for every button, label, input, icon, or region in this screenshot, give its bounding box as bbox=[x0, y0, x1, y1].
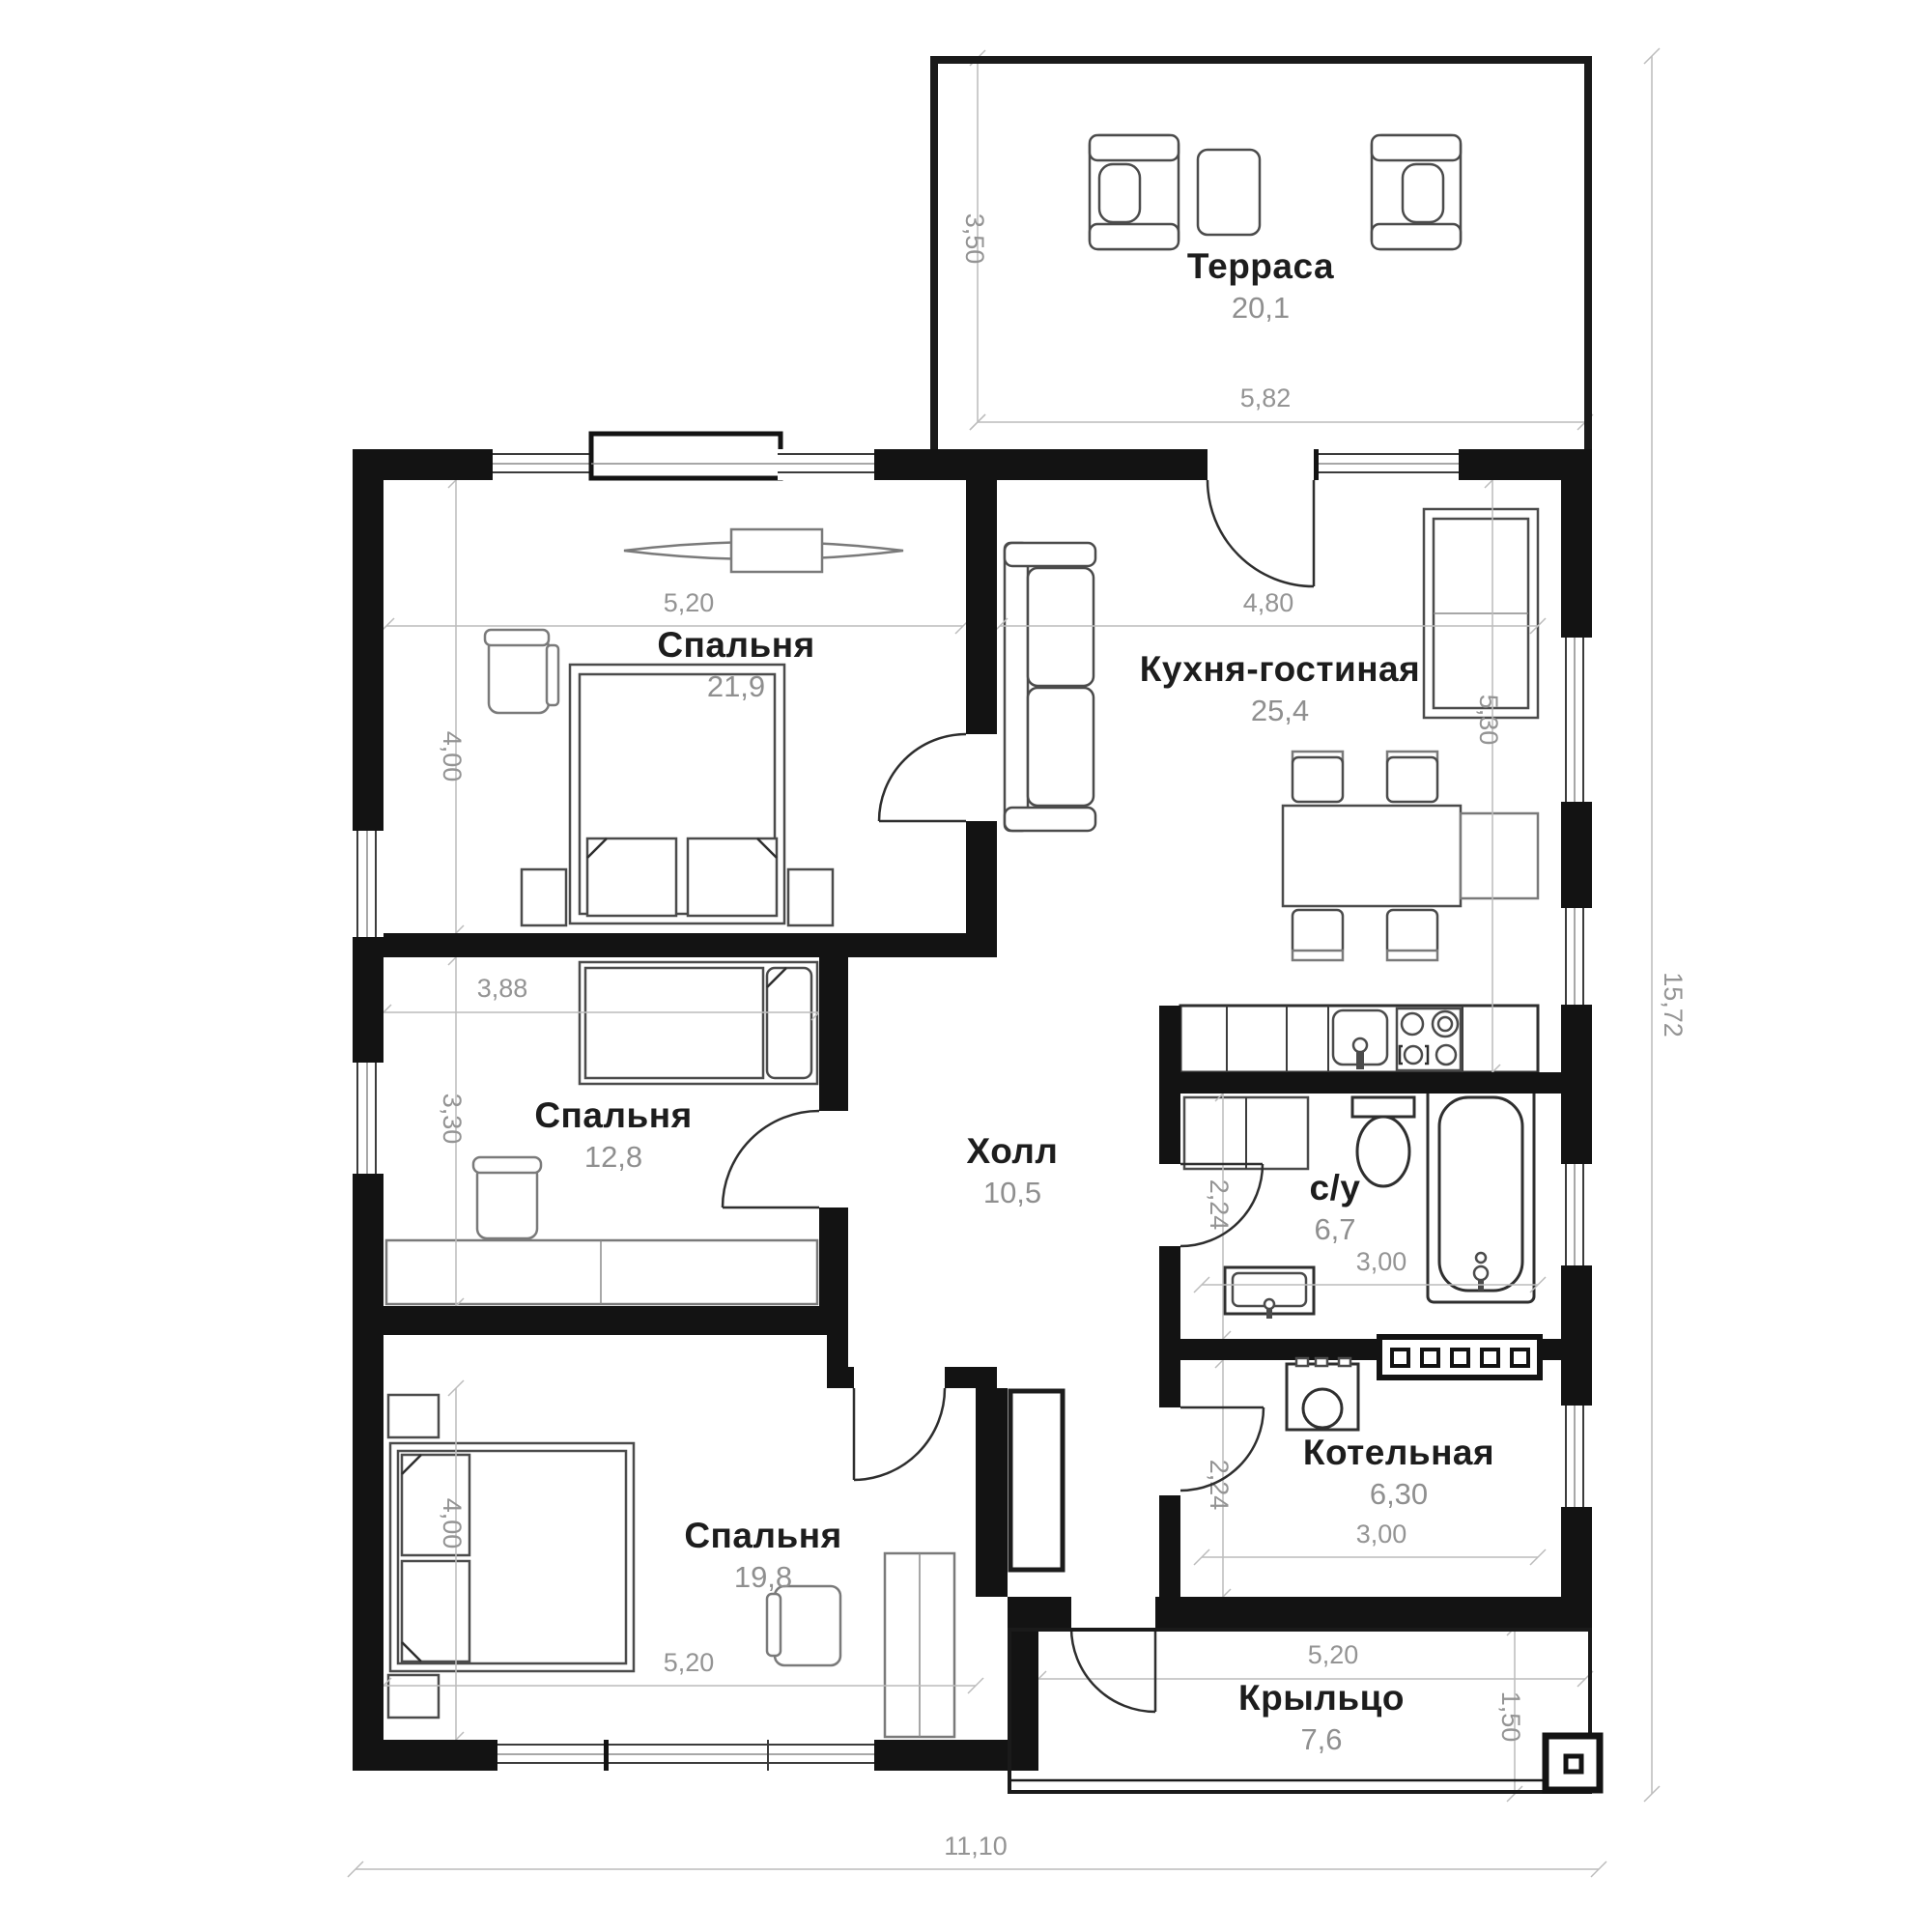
room-name: Терраса bbox=[1187, 246, 1334, 286]
room-label: Спальня12,8 bbox=[534, 1095, 692, 1174]
window bbox=[497, 1740, 604, 1771]
wall-exterior-bottom-right bbox=[1008, 1597, 1071, 1628]
vanity-cabinet bbox=[1184, 1097, 1308, 1169]
floor-plan-drawing: 3,505,825,204,805,304,003,883,302,243,00… bbox=[0, 0, 1932, 1932]
chair bbox=[1387, 757, 1437, 802]
dimension-value: 4,80 bbox=[1243, 588, 1294, 617]
dimension: 3,50 bbox=[960, 50, 989, 430]
wall-bedroom2-hall bbox=[819, 957, 848, 1111]
stove-icon bbox=[1397, 1009, 1461, 1070]
dimension: 5,82 bbox=[970, 384, 1593, 430]
dimension-value: 3,30 bbox=[438, 1094, 467, 1145]
kitchen-sink-icon bbox=[1333, 1010, 1387, 1069]
window bbox=[1561, 1406, 1592, 1507]
coffee-table bbox=[1198, 150, 1260, 235]
wardrobe bbox=[885, 1553, 954, 1737]
window bbox=[778, 449, 874, 480]
wall-bedroom2-bedroom3 bbox=[353, 1306, 848, 1335]
window bbox=[353, 831, 384, 937]
pillow bbox=[402, 1561, 469, 1662]
dimension-value: 3,00 bbox=[1356, 1520, 1407, 1548]
double-bed bbox=[570, 665, 784, 923]
door-bedroom2 bbox=[723, 1111, 819, 1207]
armrest bbox=[1372, 135, 1461, 160]
dimension-value: 5,30 bbox=[1474, 695, 1503, 746]
armrest bbox=[1372, 224, 1461, 249]
room-name: Спальня bbox=[534, 1095, 692, 1135]
door-bedroom1 bbox=[879, 734, 966, 821]
door-terrace bbox=[1207, 480, 1314, 586]
terrace-wall-left bbox=[930, 56, 938, 449]
nightstand bbox=[788, 869, 833, 925]
room-area: 21,9 bbox=[707, 669, 765, 703]
room-area: 7,6 bbox=[1300, 1722, 1342, 1756]
chair-back bbox=[1293, 951, 1343, 960]
cushion bbox=[1028, 688, 1094, 806]
room-name: с/у bbox=[1310, 1168, 1361, 1207]
wall-kitchen-bathroom bbox=[1159, 1072, 1561, 1094]
dimension-value: 11,10 bbox=[944, 1832, 1008, 1861]
armchair bbox=[1090, 135, 1179, 249]
double-bed bbox=[390, 1443, 634, 1671]
pillow bbox=[767, 968, 811, 1078]
room-label: Холл10,5 bbox=[967, 1131, 1059, 1209]
dimension-value: 5,20 bbox=[664, 588, 715, 617]
bathroom-sink-icon bbox=[1225, 1267, 1314, 1319]
room-label: Терраса20,1 bbox=[1187, 246, 1334, 325]
pillow bbox=[587, 838, 676, 916]
tall-cabinet bbox=[1424, 509, 1538, 718]
nightstand bbox=[522, 869, 566, 925]
terrace-wall-right bbox=[1584, 56, 1592, 449]
room-area: 25,4 bbox=[1251, 694, 1309, 727]
room-area: 12,8 bbox=[584, 1140, 642, 1174]
boiler-unit-icon bbox=[1287, 1358, 1358, 1430]
armchair bbox=[767, 1586, 840, 1665]
chair bbox=[1293, 910, 1343, 954]
dimension-value: 15,72 bbox=[1659, 972, 1688, 1037]
room-area: 20,1 bbox=[1232, 291, 1290, 325]
window bbox=[353, 1063, 384, 1174]
dimension: 1,50 bbox=[1496, 1620, 1525, 1802]
dimension: 4,00 bbox=[438, 472, 467, 941]
dimension-value: 4,00 bbox=[438, 1498, 467, 1549]
single-bed bbox=[580, 962, 817, 1084]
room-name: Холл bbox=[967, 1131, 1059, 1171]
bathtub-icon bbox=[1428, 1086, 1534, 1302]
room-label: Кухня-гостиная25,4 bbox=[1140, 649, 1420, 727]
room-area: 10,5 bbox=[983, 1176, 1041, 1209]
dimension-value: 3,00 bbox=[1356, 1247, 1407, 1276]
door-boiler bbox=[1180, 1407, 1264, 1491]
nightstand bbox=[388, 1675, 439, 1718]
door-bedroom3 bbox=[854, 1388, 945, 1480]
window bbox=[609, 1740, 874, 1771]
dimension: 15,72 bbox=[1644, 48, 1688, 1802]
side-counter bbox=[1461, 813, 1538, 898]
pillow bbox=[688, 838, 777, 916]
window bbox=[1561, 1164, 1592, 1265]
wall-exterior-step bbox=[1008, 1628, 1038, 1771]
window bbox=[493, 449, 594, 480]
armrest bbox=[1005, 808, 1095, 831]
dimension-value: 5,20 bbox=[1308, 1640, 1359, 1669]
dimension-value: 5,82 bbox=[1240, 384, 1292, 412]
wall-corridor-west bbox=[976, 1388, 1008, 1597]
wall-exterior-bottom-right bbox=[1155, 1597, 1561, 1628]
dimension-value: 3,88 bbox=[477, 974, 528, 1003]
dimension: 3,00 bbox=[1194, 1520, 1546, 1565]
sofa-back bbox=[1005, 543, 1028, 831]
room-label: Спальня19,8 bbox=[684, 1516, 841, 1594]
porch-column bbox=[1546, 1736, 1600, 1790]
room-name: Котельная bbox=[1303, 1433, 1494, 1472]
window bbox=[1561, 638, 1592, 802]
terrace-furniture bbox=[1090, 135, 1461, 249]
room-name: Кухня-гостиная bbox=[1140, 649, 1420, 689]
wall-bedroom1-bedroom2 bbox=[384, 933, 997, 957]
door-entrance bbox=[1071, 1628, 1155, 1712]
desk-chair bbox=[473, 1157, 541, 1238]
radiator-icon bbox=[1379, 1337, 1540, 1378]
wall-bedroom3-top bbox=[827, 1367, 854, 1388]
room-name: Спальня bbox=[684, 1516, 841, 1555]
cushion bbox=[1028, 568, 1094, 686]
window bbox=[1319, 449, 1459, 480]
wall-corridor-east bbox=[1159, 1495, 1180, 1597]
wall-bedroom3-top bbox=[945, 1367, 997, 1388]
terrace-wall-top bbox=[930, 56, 1592, 64]
table-top bbox=[1283, 806, 1461, 906]
dimension-value: 3,50 bbox=[960, 213, 989, 265]
floor-plan-page: 3,505,825,204,805,304,003,883,302,243,00… bbox=[0, 0, 1932, 1932]
entrance-door-opening bbox=[1071, 1597, 1155, 1628]
armrest bbox=[1090, 135, 1179, 160]
tv-console bbox=[731, 529, 822, 572]
armrest bbox=[1005, 543, 1095, 566]
wall-step bbox=[827, 1335, 848, 1367]
room-area: 6,30 bbox=[1370, 1477, 1428, 1511]
wall-bedroom1-kitchen bbox=[966, 821, 997, 933]
dimension: 2,24 bbox=[1205, 1352, 1234, 1605]
room-name: Спальня bbox=[657, 625, 814, 665]
armrest bbox=[1090, 224, 1179, 249]
dimension-value: 2,24 bbox=[1205, 1179, 1234, 1231]
wall-bedroom1-kitchen bbox=[966, 480, 997, 734]
toilet-icon bbox=[1352, 1097, 1414, 1186]
chair bbox=[1387, 910, 1437, 954]
room-label: с/у6,7 bbox=[1310, 1168, 1361, 1246]
dining-table bbox=[1283, 752, 1538, 960]
window bbox=[1561, 908, 1592, 1005]
room-area: 19,8 bbox=[734, 1560, 792, 1594]
cushion bbox=[1099, 164, 1140, 222]
wall-corridor-east bbox=[1159, 1246, 1180, 1407]
wardrobe bbox=[386, 1240, 817, 1304]
room-name: Крыльцо bbox=[1238, 1678, 1405, 1718]
chair bbox=[1293, 757, 1343, 802]
kitchen-counter bbox=[1180, 1006, 1538, 1072]
room-area: 6,7 bbox=[1314, 1212, 1355, 1246]
chair-back bbox=[1387, 951, 1437, 960]
mattress bbox=[585, 968, 763, 1078]
room-label: Котельная6,30 bbox=[1303, 1433, 1494, 1511]
dimension: 11,10 bbox=[348, 1832, 1606, 1877]
dimension-value: 4,00 bbox=[438, 731, 467, 782]
cushion bbox=[1403, 164, 1443, 222]
armchair bbox=[1372, 135, 1461, 249]
dimension-value: 1,50 bbox=[1496, 1691, 1525, 1743]
nightstand bbox=[388, 1395, 439, 1437]
terrace-door-opening bbox=[1207, 449, 1314, 480]
wall-bedroom2-hall bbox=[819, 1207, 848, 1306]
window-framed bbox=[591, 434, 781, 480]
sofa bbox=[1005, 543, 1095, 831]
hall-closet bbox=[1010, 1391, 1063, 1570]
room-label: Крыльцо7,6 bbox=[1238, 1678, 1405, 1756]
desk-chair bbox=[485, 630, 558, 713]
dimension-value: 5,20 bbox=[664, 1648, 715, 1677]
